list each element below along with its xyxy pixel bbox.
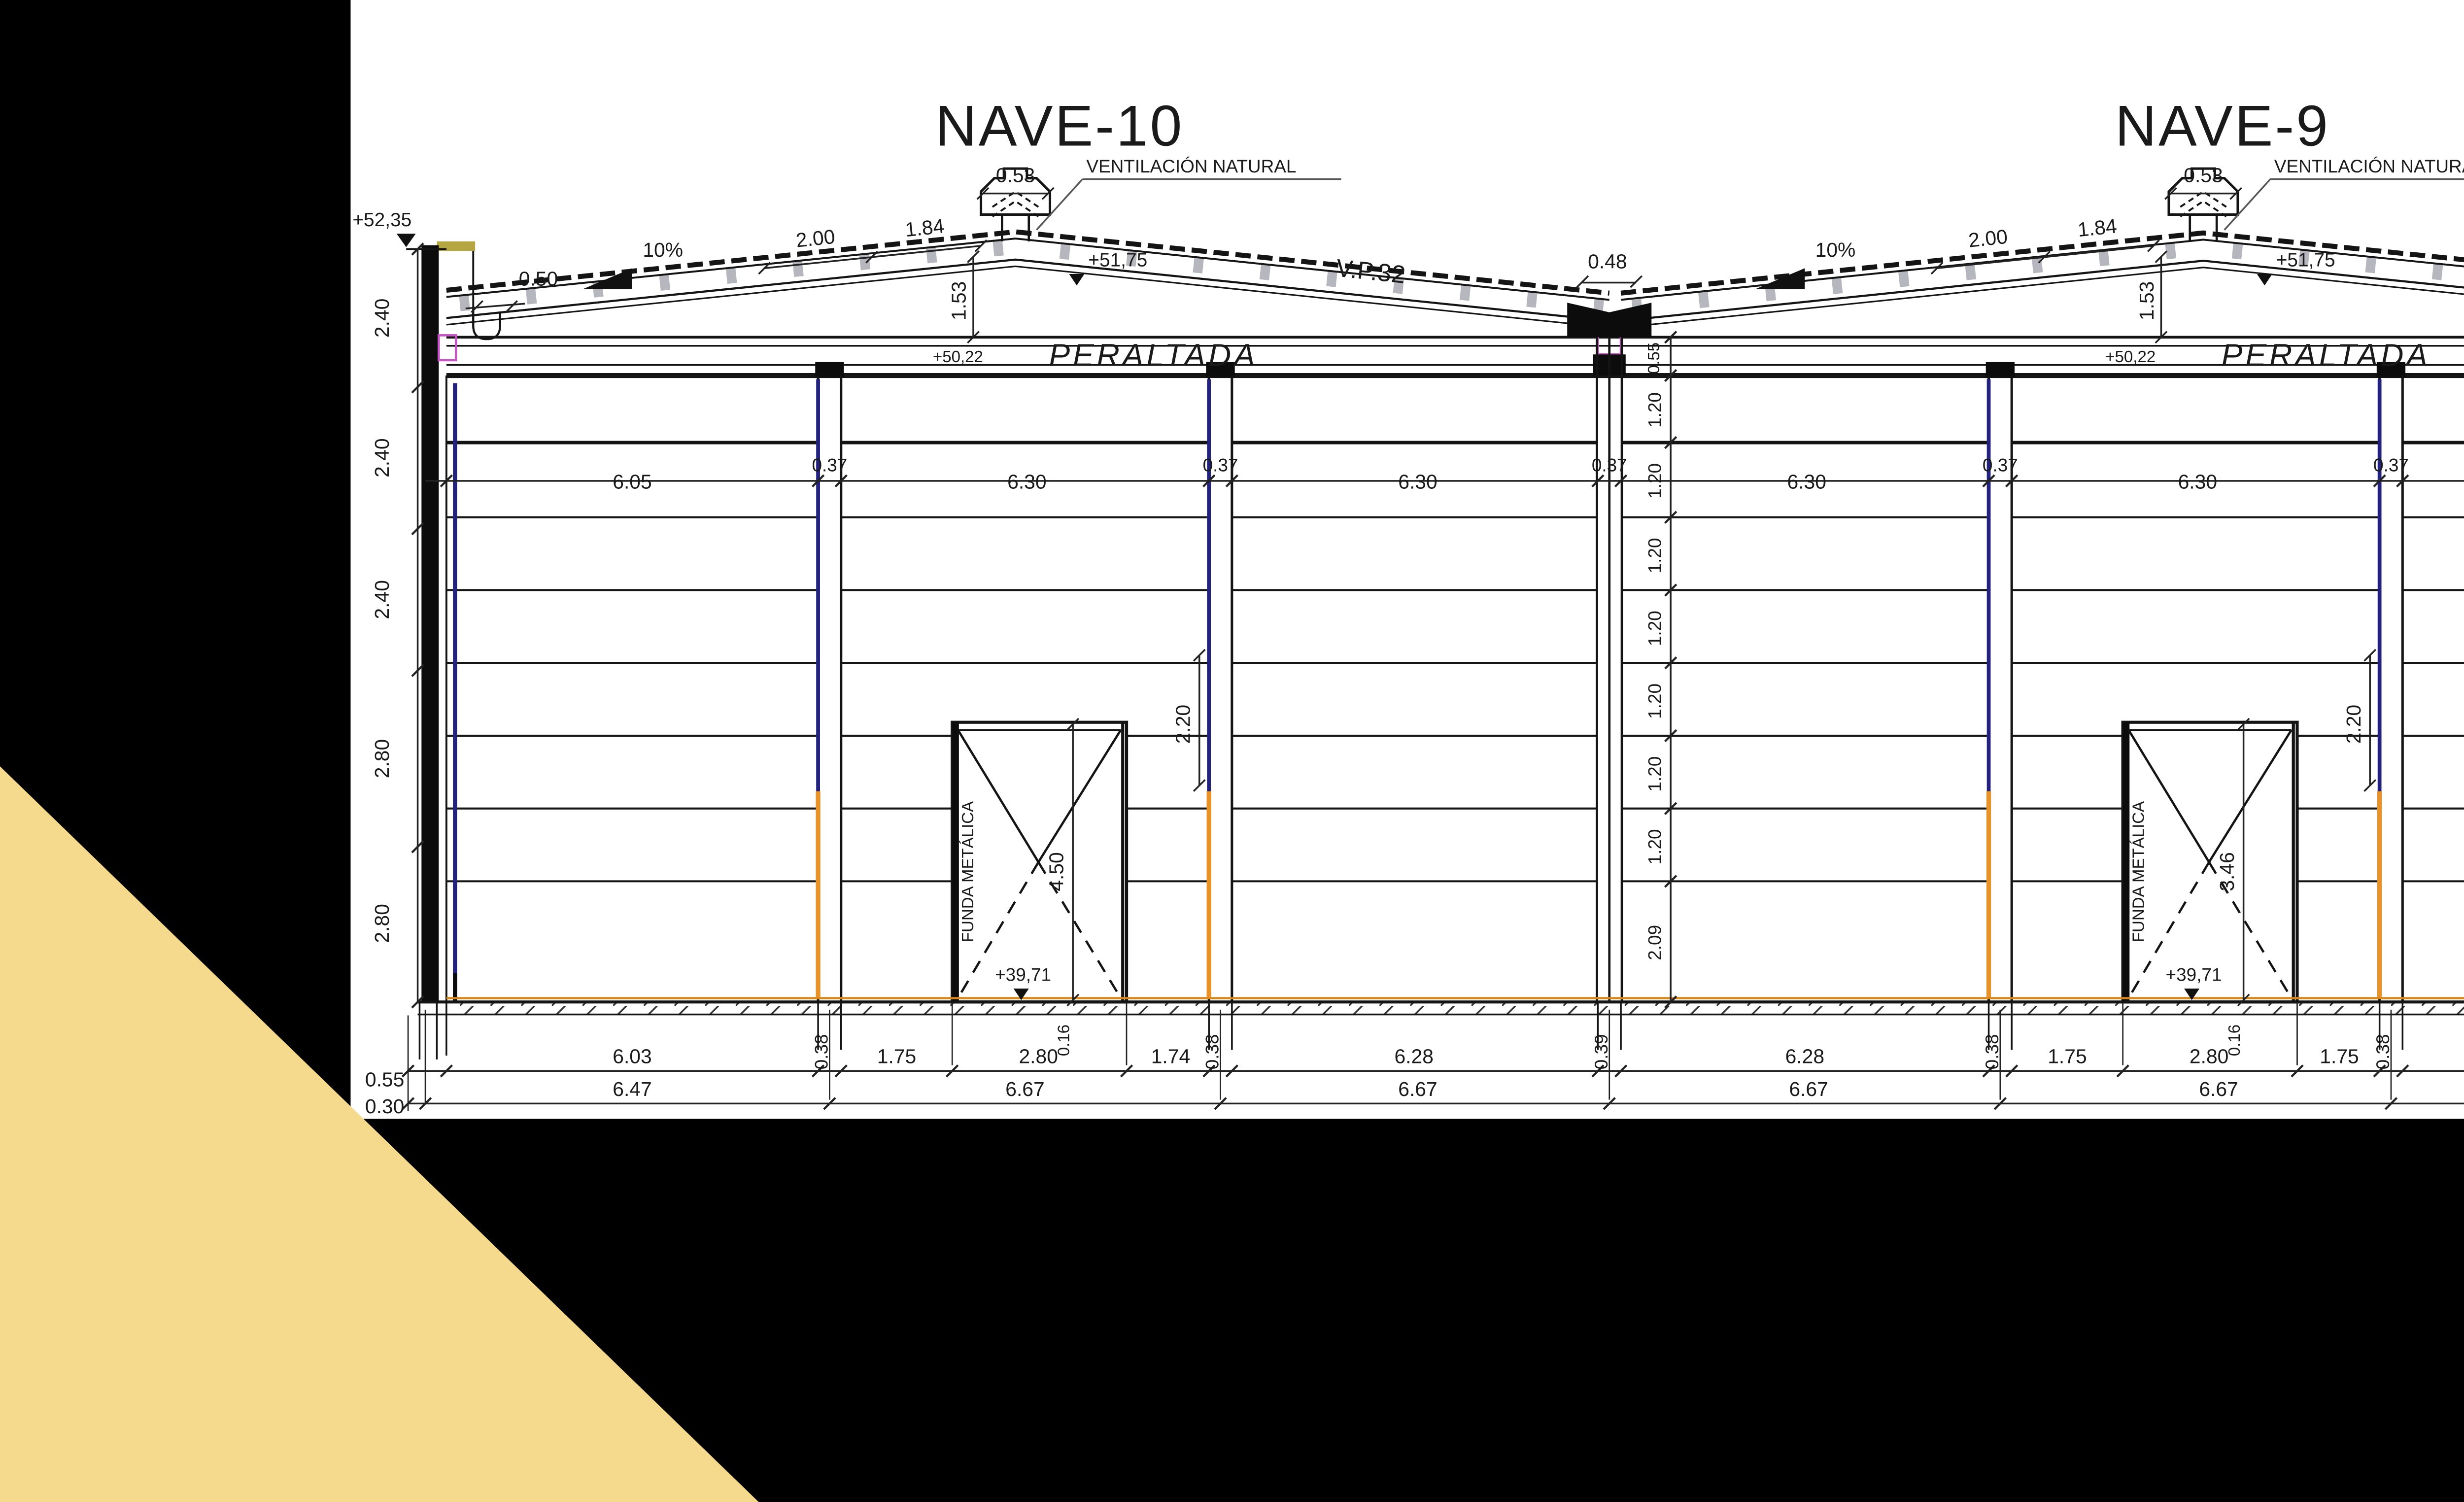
b1-5: 1.74 (1151, 1045, 1190, 1068)
top-row-1: 0.37 (812, 455, 847, 475)
title-nave-9: NAVE-9 (2115, 93, 2330, 158)
b1-3: 1.75 (877, 1045, 916, 1068)
top-row-6: 6.30 (1787, 470, 1826, 493)
top-row-8: 6.30 (2178, 470, 2217, 493)
door-right-floor-level: +39,71 (2166, 965, 2222, 985)
b1-6: 0.38 (1202, 1034, 1223, 1069)
level-parapet: +52,35 (352, 209, 411, 231)
top-row-7: 0.37 (1983, 455, 2018, 475)
purlin-dim-a-9: 2.00 (1967, 225, 2009, 252)
b1-14: 0.38 (2373, 1034, 2393, 1069)
b2-4: 6.67 (1789, 1078, 1828, 1100)
slope-label-9: 10% (1815, 239, 1856, 261)
left-chain-0: 2.40 (371, 299, 393, 338)
top-row-0: 6.05 (613, 470, 651, 493)
door-left-lintel: 2.20 (1171, 705, 1194, 744)
b1-10: 0.38 (1982, 1034, 2002, 1069)
slope-label-10: 10% (643, 239, 683, 261)
b1-11: 1.75 (2048, 1045, 2087, 1068)
top-row-4: 6.30 (1398, 470, 1437, 493)
b1-4: 2.80 (1019, 1045, 1058, 1068)
b1-2: 0.38 (812, 1034, 832, 1069)
b2-2: 6.67 (1005, 1078, 1044, 1100)
door-left-height: 4.50 (1045, 852, 1068, 891)
left-chain-2: 2.40 (371, 580, 393, 619)
center-chain-top: 0.55 (1645, 342, 1663, 374)
center-chain-p4: 1.20 (1645, 683, 1665, 719)
title-nave-10: NAVE-10 (935, 93, 1184, 158)
top-row-2: 6.30 (1007, 470, 1046, 493)
b2-5: 6.67 (2199, 1078, 2238, 1100)
top-row-3: 0.37 (1203, 455, 1238, 475)
center-chain-p3: 1.20 (1645, 611, 1665, 646)
ridge-rise-9: 1.53 (2135, 281, 2158, 320)
top-row-9: 0.37 (2373, 455, 2409, 475)
b1-8: 0.39 (1591, 1034, 1611, 1069)
monitor-width-9: 0.53 (2184, 164, 2223, 186)
door-right-lintel: 2.20 (2342, 705, 2365, 744)
b2-3: 6.67 (1398, 1078, 1437, 1100)
level-eave-10: +50,22 (933, 348, 983, 366)
center-chain-p0: 1.20 (1645, 392, 1665, 428)
door-left-cover: FUNDA METÁLICA (959, 801, 977, 942)
ventilation-label-10: VENTILACIÓN NATURAL (1086, 156, 1296, 176)
gutter-width: 0.50 (519, 267, 558, 290)
b1-1: 6.03 (613, 1045, 651, 1068)
b1-7: 6.28 (1394, 1045, 1433, 1068)
level-ridge-9: +51,75 (2276, 249, 2335, 271)
left-chain-4: 2.80 (371, 904, 393, 943)
level-ridge-10: +51,75 (1088, 249, 1147, 271)
ventilation-label-9: VENTILACIÓN NATURAL (2274, 156, 2464, 176)
b2-1: 6.47 (613, 1078, 651, 1100)
ridge-rise-10: 1.53 (947, 281, 970, 320)
purlin-dim-b-9: 1.84 (2077, 214, 2118, 241)
beam-style-10: PERALTADA (1049, 338, 1258, 373)
center-chain-p1: 1.20 (1645, 463, 1665, 499)
top-row-5: 0.37 (1592, 455, 1627, 475)
center-chain-bottom: 2.09 (1645, 925, 1665, 960)
b2-0: 0.30 (365, 1095, 404, 1118)
b1-12: 2.80 (2190, 1045, 2228, 1068)
left-chain-3: 2.80 (371, 739, 393, 778)
b1-9: 6.28 (1785, 1045, 1824, 1068)
center-chain-p6: 1.20 (1645, 829, 1665, 864)
monitor-width-10: 0.53 (996, 164, 1035, 186)
center-chain-p2: 1.20 (1645, 538, 1665, 574)
door-left-floor-level: +39,71 (995, 965, 1051, 985)
b1-0: 0.55 (365, 1068, 404, 1091)
column-center (1593, 322, 1626, 1002)
slide: NAVE-10 NAVE-9 +52,35 +51,75 +51,75 +50,… (0, 0, 2464, 1502)
beam-style-9: PERALTADA (2222, 338, 2430, 373)
door-right-height: 3.46 (2216, 852, 2238, 891)
drawing-panel (350, 0, 2464, 1119)
valley-width: 0.48 (1588, 250, 1627, 273)
level-eave-9: +50,22 (2105, 348, 2156, 366)
purlin-dim-a-10: 2.00 (795, 225, 836, 252)
section-drawing: NAVE-10 NAVE-9 +52,35 +51,75 +51,75 +50,… (0, 0, 2464, 1502)
b1-13: 1.75 (2320, 1045, 2359, 1068)
door-right-cover: FUNDA METÁLICA (2129, 801, 2148, 942)
left-chain-1: 2.40 (371, 438, 393, 477)
purlin-dim-b-10: 1.84 (904, 214, 945, 241)
center-chain-p5: 1.20 (1645, 756, 1665, 792)
